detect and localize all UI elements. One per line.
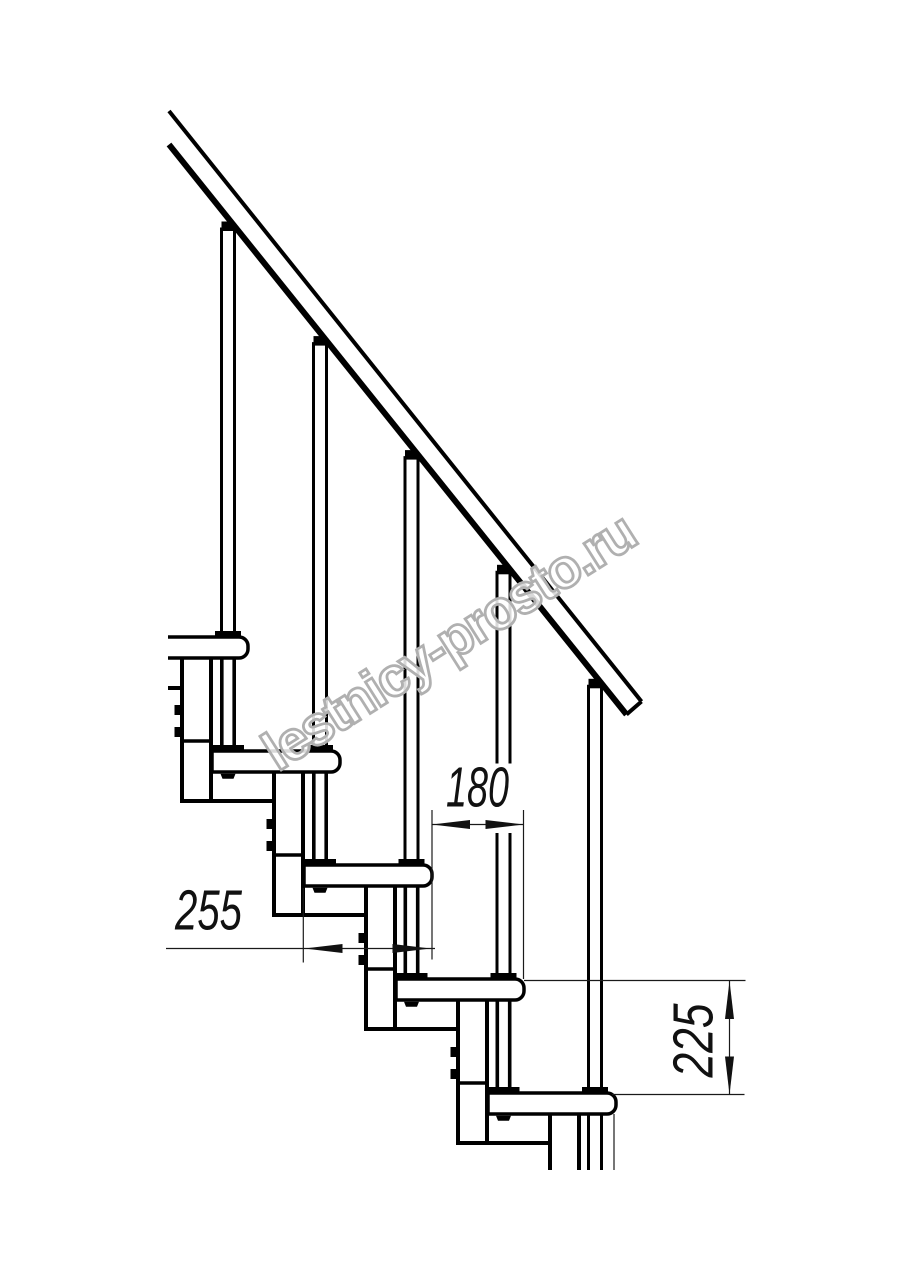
svg-text:255: 255 bbox=[174, 879, 242, 943]
svg-text:180: 180 bbox=[446, 756, 509, 820]
svg-text:225: 225 bbox=[662, 1003, 726, 1078]
